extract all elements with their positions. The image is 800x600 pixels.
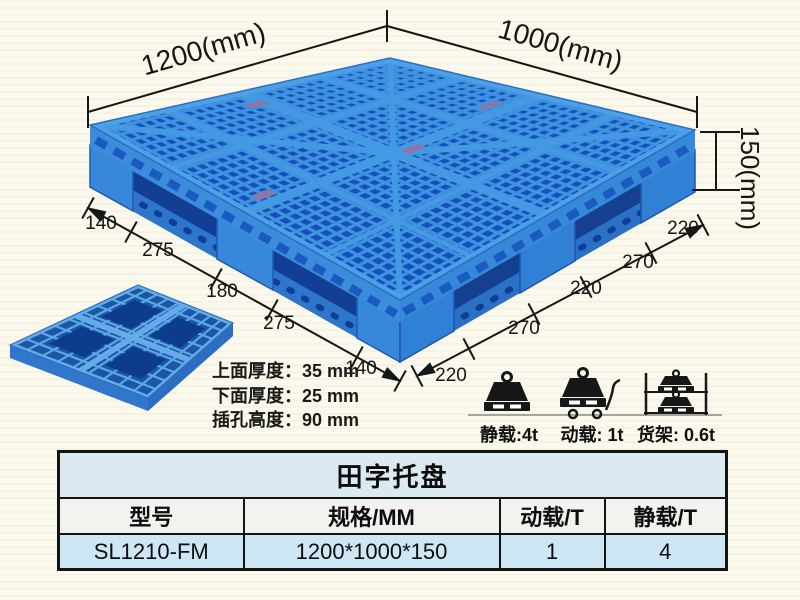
dynamic-load-label: 动载: 1t (561, 424, 624, 445)
left-seg-label: 275 (263, 313, 295, 334)
cell-model: SL1210-FM (59, 534, 244, 570)
cell-static-load: 4 (605, 534, 727, 570)
pallet-illustration: 1200(mm) 1000(mm) 150(mm) 140 275 180 27… (0, 0, 800, 460)
small-pallet-bottom-view (10, 285, 233, 411)
pallet-product-sheet: { "colors": { "pallet_blue": "#2e7ecf", … (0, 0, 800, 600)
static-load-label: 静载:4t (480, 424, 538, 445)
static-load-weight-icon (484, 373, 530, 412)
table-data-row: SL1210-FM 1200*1000*150 1 4 (59, 534, 727, 570)
table-title-row: 田字托盘 (59, 452, 727, 499)
rack-load-label: 货架: 0.6t (637, 424, 715, 445)
spec-table: 田字托盘 型号 规格/MM 动载/T 静载/T SL1210-FM 1200*1… (57, 450, 725, 571)
load-ratings: 静载:4t 动载: 1t 货架: 0.6t (468, 369, 722, 446)
rack-load-shelf-icon (644, 371, 708, 416)
header-static-load: 静载/T (605, 498, 727, 534)
header-model: 型号 (59, 498, 244, 534)
right-seg-label: 220 (570, 278, 602, 299)
dim-height-label: 150(mm) (735, 126, 765, 230)
small-pallet-face (10, 285, 233, 398)
table-header-row: 型号 规格/MM 动载/T 静载/T (59, 498, 727, 534)
header-spec-mm: 规格/MM (244, 498, 500, 534)
spec-line-fork-height: 插孔高度：90 mm (212, 409, 359, 430)
right-seg-label: 270 (508, 318, 540, 339)
right-seg-label: 270 (622, 252, 654, 273)
left-seg-label: 140 (85, 213, 117, 234)
load-rating-labels: 静载:4t 动载: 1t 货架: 0.6t (480, 424, 715, 445)
cell-dynamic-load: 1 (500, 534, 605, 570)
dim-depth-label: 1000(mm) (495, 13, 626, 77)
left-seg-label: 180 (206, 281, 238, 302)
header-dynamic-load: 动载/T (500, 498, 605, 534)
dim-width-label: 1200(mm) (138, 16, 269, 81)
right-seg-label: 220 (667, 218, 699, 239)
table-title: 田字托盘 (59, 452, 727, 499)
cell-spec-mm: 1200*1000*150 (244, 534, 500, 570)
spec-line-top-thickness: 上面厚度：35 mm (212, 360, 359, 381)
thickness-specs: 上面厚度：35 mm 下面厚度：25 mm 插孔高度：90 mm (212, 360, 359, 430)
left-seg-label: 275 (142, 240, 174, 261)
spec-line-bottom-thickness: 下面厚度：25 mm (212, 385, 359, 406)
spec-table-grid: 田字托盘 型号 规格/MM 动载/T 静载/T SL1210-FM 1200*1… (57, 450, 728, 571)
right-seg-label: 220 (435, 365, 467, 386)
dynamic-load-trolley-icon (560, 369, 620, 419)
